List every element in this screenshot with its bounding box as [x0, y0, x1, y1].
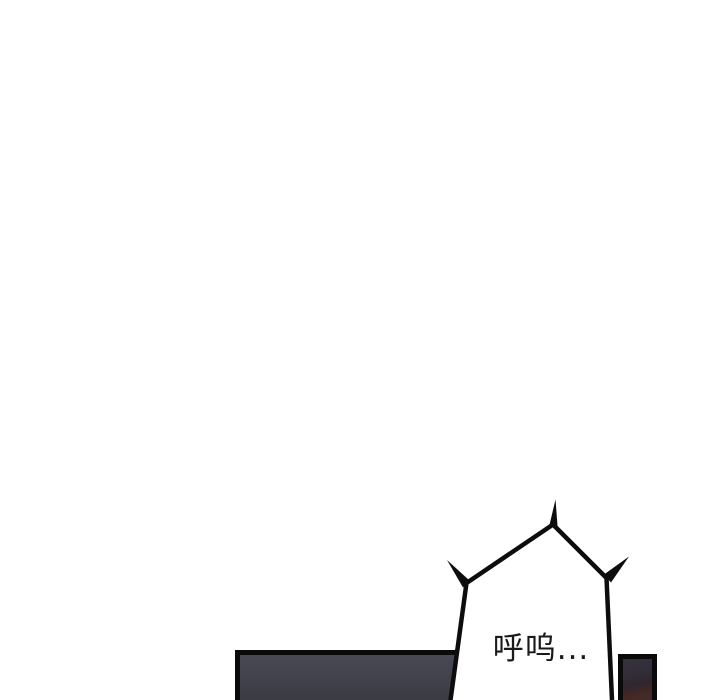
speech-bubble-text: 呼呜... — [455, 633, 627, 666]
panel-left — [235, 650, 459, 700]
comic-artwork — [0, 0, 720, 700]
page-background — [0, 0, 720, 700]
comic-page: 呼呜... — [0, 0, 720, 700]
